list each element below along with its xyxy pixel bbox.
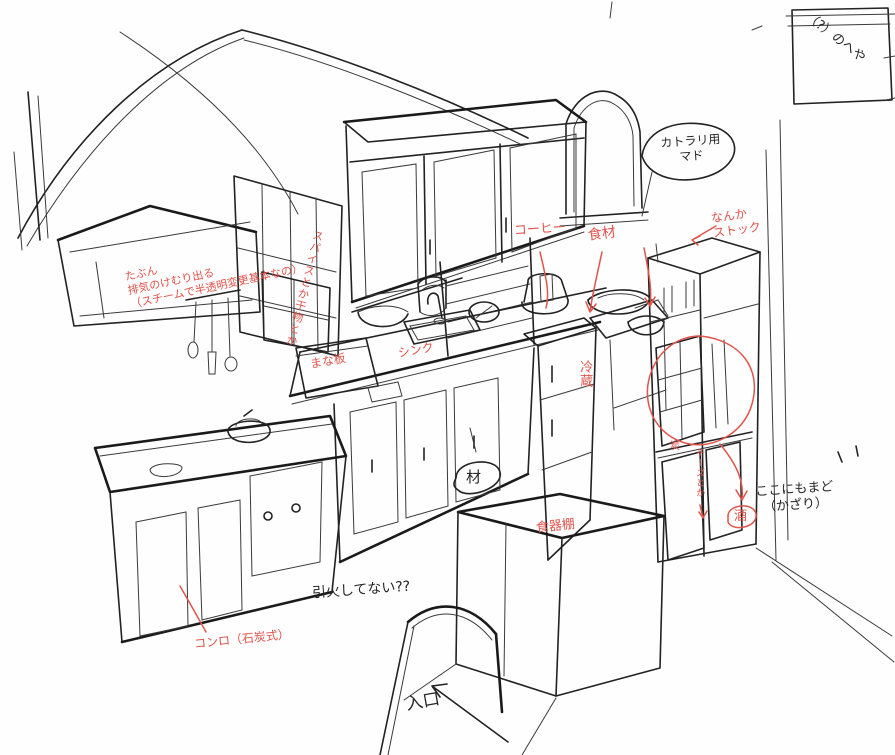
exhaust-hood	[58, 206, 260, 326]
ceiling-arches	[14, 2, 762, 250]
sink-counter	[290, 288, 606, 404]
kitchen-sketch-canvas: （?）のへや カトラリ用 マド なんか ストック コーヒー 食材 たぶん 排気の…	[0, 0, 895, 755]
base-cabinets	[334, 348, 534, 562]
kitchen-line-art	[0, 0, 895, 755]
pantry-shelf	[648, 238, 760, 562]
wall-floor-lines	[756, 120, 894, 662]
hanging-utensils	[186, 290, 240, 374]
island-cabinet	[404, 494, 664, 755]
backsplash-slats	[440, 238, 534, 356]
stove-counter	[95, 410, 346, 642]
left-shelf-unit	[234, 176, 342, 356]
upper-cabinets	[344, 100, 586, 308]
fridge	[524, 318, 596, 560]
entrance-door	[380, 607, 502, 755]
red-callouts	[180, 226, 756, 632]
room-box	[786, 8, 895, 104]
